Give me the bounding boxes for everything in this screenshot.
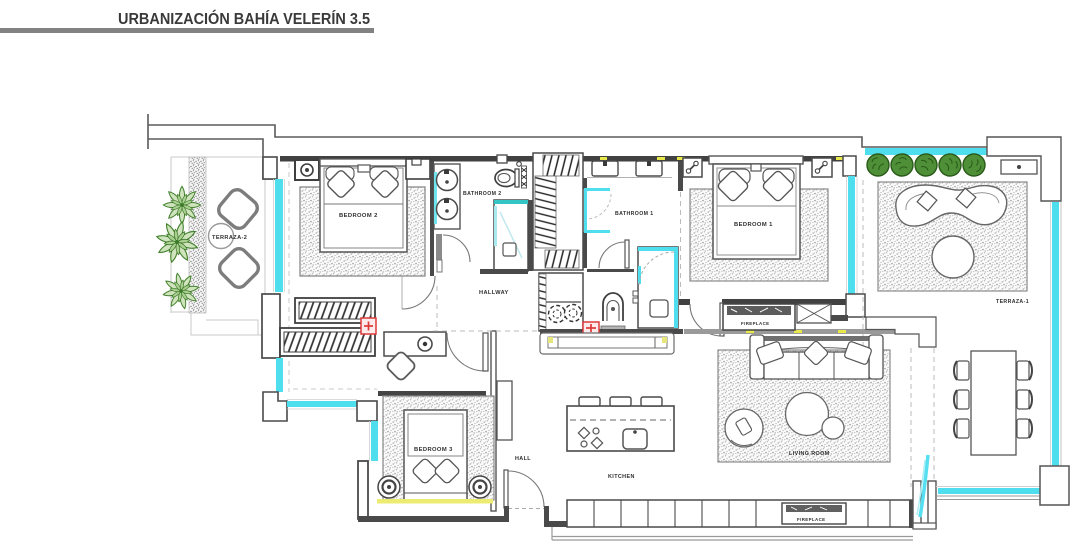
svg-text:URBANIZACIÓN BAHÍA VELERÍN 3.5: URBANIZACIÓN BAHÍA VELERÍN 3.5 xyxy=(118,10,370,28)
svg-text:BEDROOM 1: BEDROOM 1 xyxy=(734,222,773,228)
svg-text:BEDROOM 3: BEDROOM 3 xyxy=(414,447,453,453)
svg-text:FIREPLACE: FIREPLACE xyxy=(797,517,825,522)
svg-text:KITCHEN: KITCHEN xyxy=(608,474,635,480)
svg-text:FIREPLACE: FIREPLACE xyxy=(741,321,769,326)
svg-text:HALL: HALL xyxy=(515,456,531,462)
svg-text:BEDROOM 2: BEDROOM 2 xyxy=(339,213,378,219)
svg-text:BATHROOM 2: BATHROOM 2 xyxy=(463,191,502,197)
svg-text:TERRAZA-1: TERRAZA-1 xyxy=(996,299,1029,305)
svg-text:BATHROOM 1: BATHROOM 1 xyxy=(615,211,654,217)
svg-text:TERRAZA-2: TERRAZA-2 xyxy=(212,235,247,241)
svg-text:HALLWAY: HALLWAY xyxy=(479,290,509,296)
svg-text:LIVING ROOM: LIVING ROOM xyxy=(789,451,830,457)
